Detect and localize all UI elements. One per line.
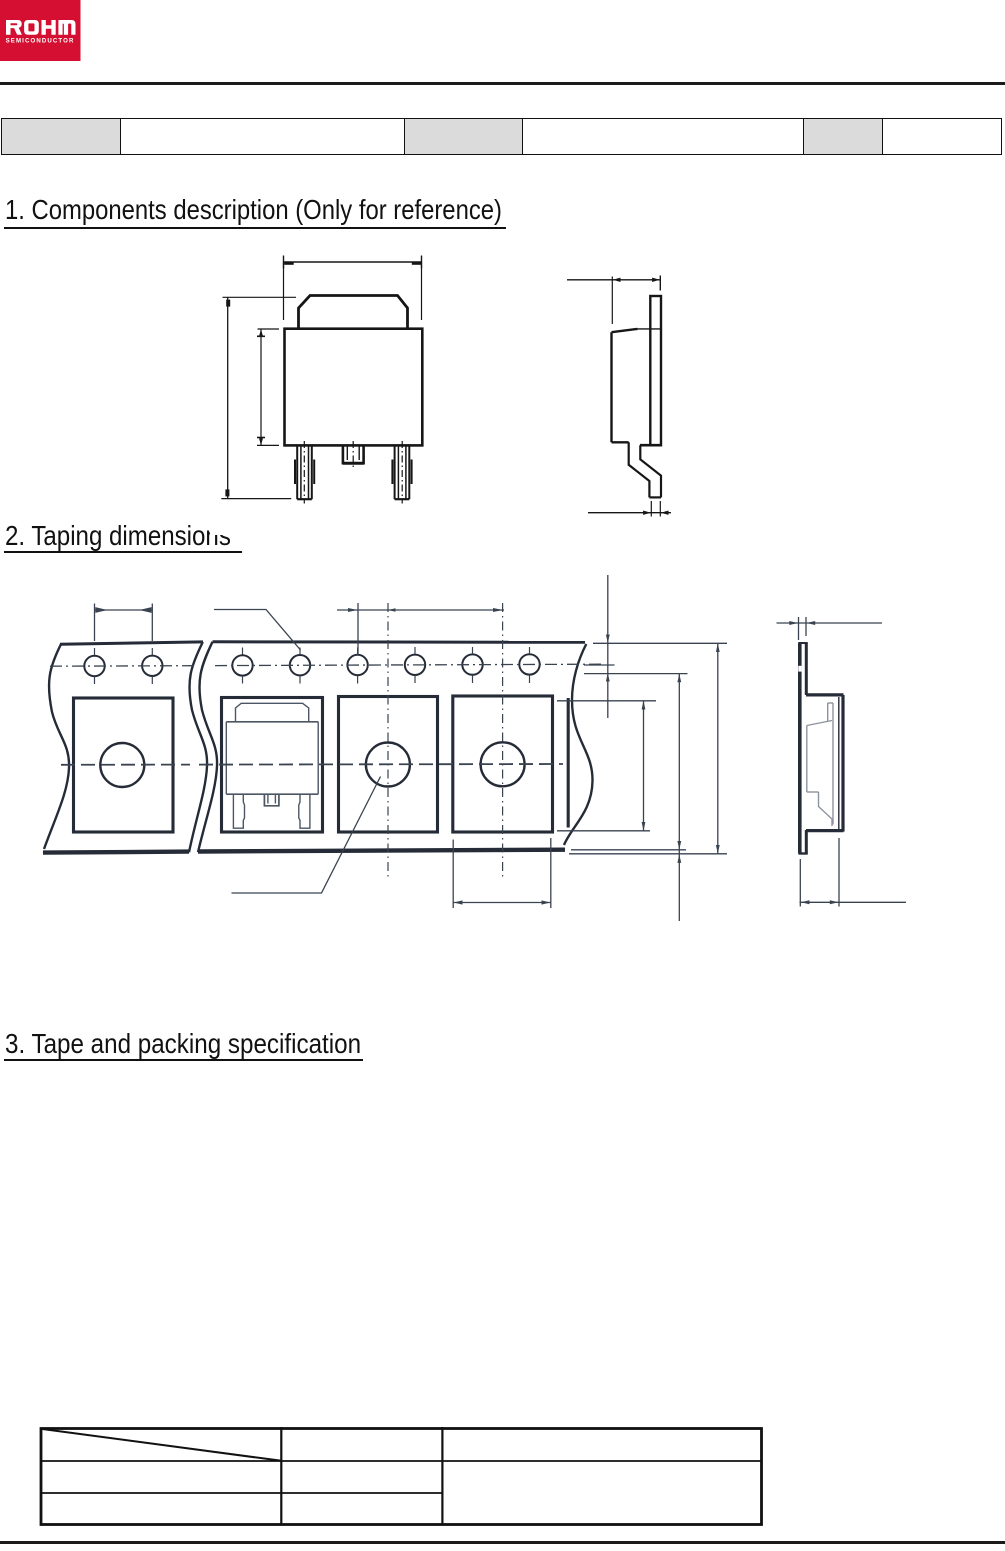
svg-text:SEMICONDUCTOR: SEMICONDUCTOR (6, 37, 75, 44)
